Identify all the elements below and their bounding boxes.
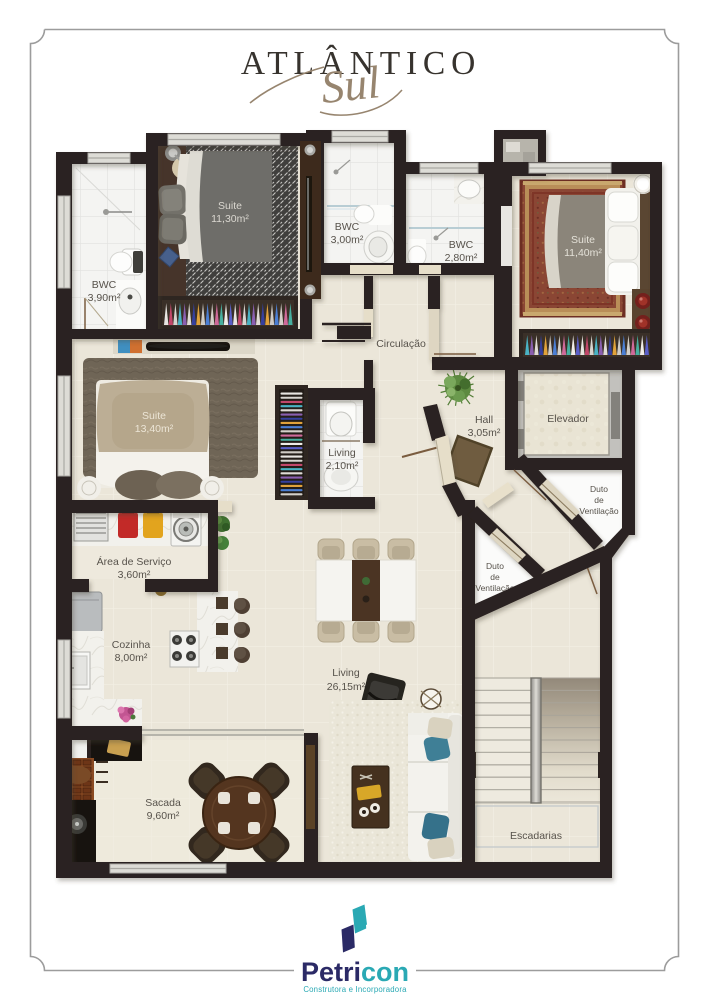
svg-text:2,10m²: 2,10m² <box>326 460 359 472</box>
svg-text:BWC: BWC <box>92 279 117 291</box>
svg-text:Suite: Suite <box>571 234 595 246</box>
svg-text:11,30m²: 11,30m² <box>211 213 249 225</box>
svg-text:13,40m²: 13,40m² <box>135 423 174 435</box>
svg-text:Suite: Suite <box>142 410 166 422</box>
svg-text:Ventilação: Ventilação <box>579 506 618 516</box>
svg-text:2,80m²: 2,80m² <box>445 252 478 264</box>
svg-text:BWC: BWC <box>449 239 474 251</box>
svg-text:Hall: Hall <box>475 414 493 426</box>
svg-text:3,05m²: 3,05m² <box>468 427 501 439</box>
svg-text:Escadarias: Escadarias <box>510 830 562 842</box>
svg-text:26,15m²: 26,15m² <box>327 681 366 693</box>
svg-text:Suite: Suite <box>218 200 242 212</box>
svg-text:Área de Serviço: Área de Serviço <box>97 555 172 568</box>
svg-text:8,00m²: 8,00m² <box>115 652 148 664</box>
svg-text:de: de <box>490 572 500 582</box>
svg-text:3,00m²: 3,00m² <box>331 234 364 246</box>
svg-text:Sacada: Sacada <box>145 797 181 809</box>
svg-text:Circulação: Circulação <box>376 338 426 350</box>
svg-text:3,90m²: 3,90m² <box>88 292 121 304</box>
svg-text:Elevador: Elevador <box>547 413 589 425</box>
svg-text:de: de <box>594 495 604 505</box>
svg-text:9,60m²: 9,60m² <box>147 810 180 822</box>
svg-text:11,40m²: 11,40m² <box>564 247 602 259</box>
svg-text:Duto: Duto <box>590 484 608 494</box>
svg-text:Petricon: Petricon <box>301 957 409 987</box>
svg-text:Sul: Sul <box>318 56 382 113</box>
svg-text:Duto: Duto <box>486 561 504 571</box>
svg-text:Cozinha: Cozinha <box>112 639 151 651</box>
svg-text:Living: Living <box>332 667 360 679</box>
svg-text:BWC: BWC <box>335 221 360 233</box>
svg-text:Construtora e Incorporadora: Construtora e Incorporadora <box>303 985 407 994</box>
svg-text:Living: Living <box>328 447 356 459</box>
